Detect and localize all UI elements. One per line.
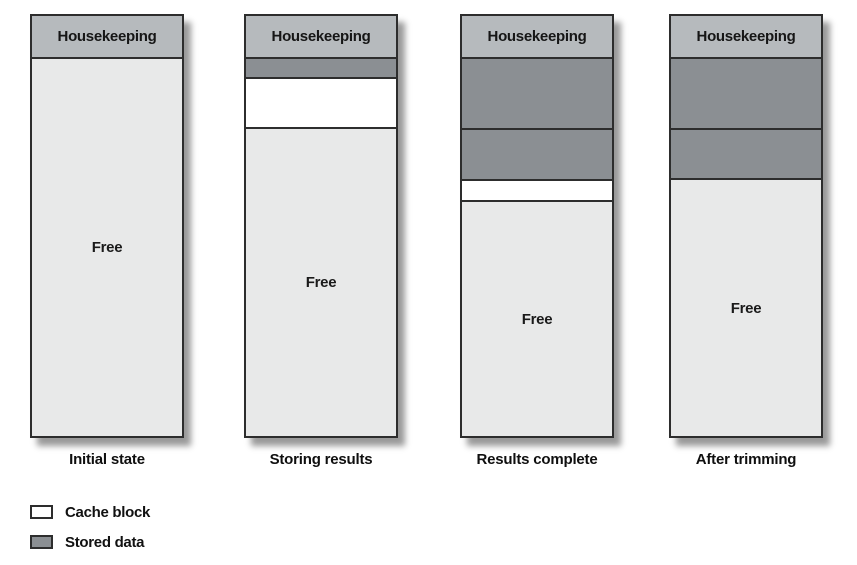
memory-column-after-trimming: HousekeepingFreeAfter trimming — [669, 14, 823, 468]
housekeeping-block: Housekeeping — [462, 16, 612, 59]
housekeeping-block: Housekeeping — [246, 16, 396, 59]
stored-data-block — [462, 130, 612, 181]
cache-block — [246, 79, 396, 129]
free-label: Free — [731, 300, 762, 317]
free-block: Free — [246, 129, 396, 436]
column-caption-after-trimming: After trimming — [669, 451, 823, 468]
free-label: Free — [306, 274, 337, 291]
legend-label: Stored data — [65, 534, 144, 551]
legend-item-stored-block: Stored data — [30, 533, 150, 551]
stored-data-block — [671, 59, 821, 130]
column-caption-results-complete: Results complete — [460, 451, 614, 468]
legend-swatch-cache — [30, 505, 53, 519]
legend: Cache blockStored data — [30, 503, 150, 563]
free-label: Free — [92, 239, 123, 256]
housekeeping-block: Housekeeping — [32, 16, 182, 59]
stored-data-block — [671, 130, 821, 180]
memory-box-initial-state: HousekeepingFree — [30, 14, 184, 438]
column-caption-storing-results: Storing results — [244, 451, 398, 468]
memory-box-after-trimming: HousekeepingFree — [669, 14, 823, 438]
memory-diagram: HousekeepingFreeInitial stateHousekeepin… — [0, 0, 857, 565]
memory-column-results-complete: HousekeepingFreeResults complete — [460, 14, 614, 468]
legend-item-cache-block: Cache block — [30, 503, 150, 521]
memory-box-results-complete: HousekeepingFree — [460, 14, 614, 438]
cache-block — [462, 181, 612, 202]
free-label: Free — [522, 311, 553, 328]
column-caption-initial-state: Initial state — [30, 451, 184, 468]
legend-label: Cache block — [65, 504, 150, 521]
housekeeping-block: Housekeeping — [671, 16, 821, 59]
free-block: Free — [671, 180, 821, 436]
stored-data-block — [246, 59, 396, 79]
memory-box-storing-results: HousekeepingFree — [244, 14, 398, 438]
free-block: Free — [32, 59, 182, 436]
stored-data-block — [462, 59, 612, 130]
memory-column-initial-state: HousekeepingFreeInitial state — [30, 14, 184, 468]
memory-column-storing-results: HousekeepingFreeStoring results — [244, 14, 398, 468]
legend-swatch-stored — [30, 535, 53, 549]
free-block: Free — [462, 202, 612, 436]
